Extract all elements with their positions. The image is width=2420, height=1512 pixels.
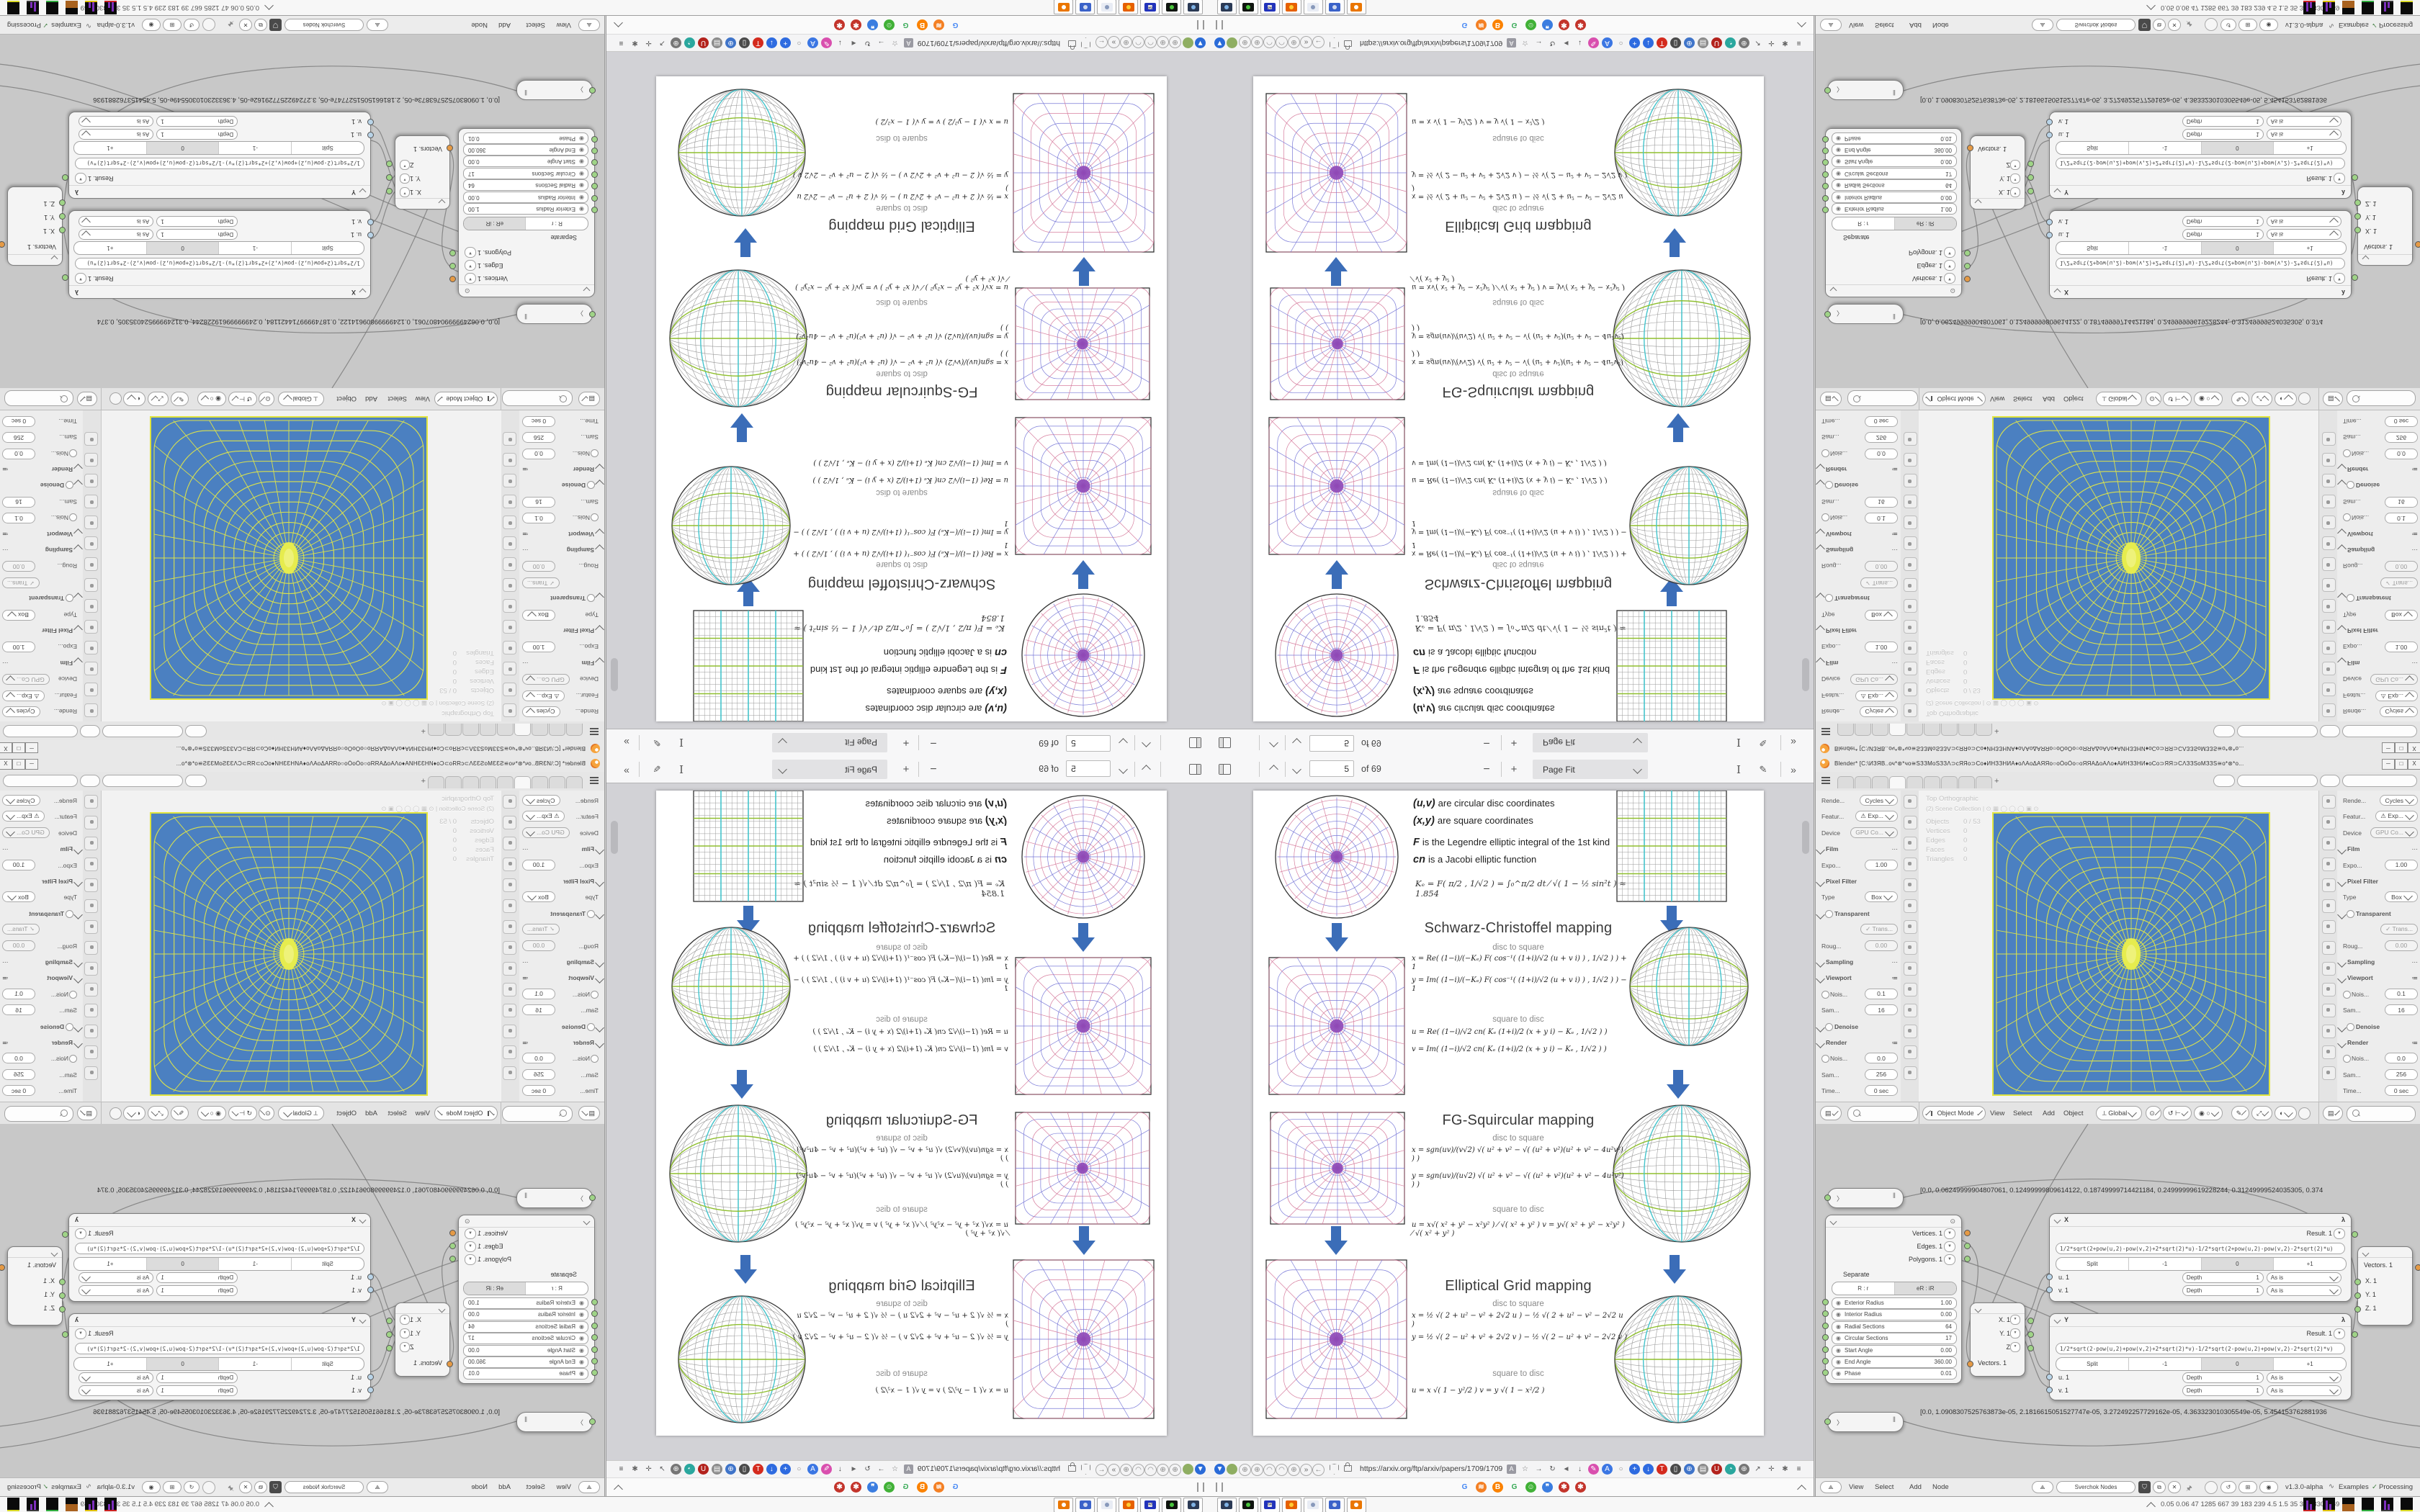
node-header[interactable]: ⊙: [1826, 284, 1961, 297]
section-checkbox[interactable]: [66, 910, 73, 918]
section-checkbox[interactable]: [2347, 1023, 2354, 1031]
editor-type-dropdown[interactable]: ▤: [1820, 1106, 1842, 1120]
socket-menu[interactable]: ▼: [1944, 1241, 1955, 1252]
number-field[interactable]: ◉End Angle360.00: [463, 1356, 588, 1368]
expand-icon[interactable]: [595, 464, 604, 473]
workspace-tab[interactable]: [480, 724, 496, 736]
minimize-button[interactable]: ─: [25, 742, 38, 753]
property-value[interactable]: 0.00: [1865, 940, 1898, 951]
search-input[interactable]: [502, 1106, 573, 1122]
property-value[interactable]: 256: [2385, 432, 2418, 443]
properties-tab-icon[interactable]: [1904, 899, 1917, 913]
properties-tab-icon[interactable]: [503, 858, 516, 871]
wrap-select[interactable]: As is: [79, 1385, 154, 1396]
snap-target-dropdown[interactable]: ⊙: [2146, 392, 2161, 406]
nav-icon[interactable]: ⊕: [1251, 1464, 1263, 1476]
properties-tab-icon[interactable]: [1904, 474, 1917, 487]
collapse-toolbar-icon[interactable]: [1797, 1485, 1806, 1494]
tree-type-dropdown[interactable]: ⟁: [2032, 19, 2053, 31]
refresh-dropdown[interactable]: ↺: [2220, 19, 2236, 31]
extension-icon[interactable]: ◄: [1561, 37, 1572, 48]
bookmark-icon[interactable]: ≋: [1476, 1482, 1487, 1493]
depth-field[interactable]: Depth1: [2182, 116, 2264, 127]
extension-icon[interactable]: ▤: [712, 1464, 722, 1475]
extension-icon[interactable]: ✎: [1588, 1464, 1599, 1475]
menu-add[interactable]: Add: [1909, 21, 1922, 29]
node-header[interactable]: Yλ: [69, 1314, 370, 1327]
orientation-select[interactable]: ⟂ Global: [2096, 1106, 2142, 1120]
blender-app-launcher-icon[interactable]: [1347, 0, 1366, 14]
more-tools-button[interactable]: »: [618, 734, 635, 751]
collapse-chevron-icon[interactable]: [51, 1250, 58, 1257]
split-toggle[interactable]: Split-10+1: [73, 241, 364, 255]
expand-icon[interactable]: [2337, 657, 2347, 667]
expand-icon[interactable]: [73, 464, 83, 473]
search-input[interactable]: [1847, 390, 1918, 406]
card-reader-app-launcher-icon[interactable]: [1162, 0, 1181, 14]
extension-icon[interactable]: ✎: [1588, 37, 1599, 48]
depth-field[interactable]: Depth1: [2182, 1285, 2264, 1296]
property-value[interactable]: 16: [522, 497, 555, 508]
menu-icon[interactable]: [590, 777, 599, 778]
property-value[interactable]: 1.00: [2, 860, 35, 870]
depth-field[interactable]: Depth1: [156, 1372, 238, 1383]
socket-input[interactable]: [1822, 195, 1829, 202]
socket-input[interactable]: [1824, 87, 1831, 94]
properties-tab-icon[interactable]: [1904, 1066, 1917, 1080]
split-option[interactable]: -1: [2129, 142, 2202, 154]
properties-tab-icon[interactable]: [2322, 703, 2336, 717]
bake-dropdown[interactable]: ◉: [2259, 19, 2278, 31]
panel-menu-icon[interactable]: ≔: [1892, 530, 1899, 538]
split-option[interactable]: 0: [2202, 242, 2275, 254]
extension-icon[interactable]: ↗: [1752, 37, 1763, 48]
property-value[interactable]: 0 sec: [2, 1085, 35, 1096]
torus-node[interactable]: ⊙Vertices. 1▼Edges. 1▼Polygons. 1▼Separa…: [458, 128, 595, 297]
properties-tab-icon[interactable]: [503, 495, 516, 508]
extension-icon[interactable]: →: [876, 37, 887, 48]
depth-field[interactable]: Depth1: [2182, 129, 2264, 140]
property-value[interactable]: 0.0: [522, 449, 555, 459]
vector-out-node[interactable]: X. 1▼Y. 1▼Z▼Vectors. 1: [1970, 135, 2025, 210]
number-field[interactable]: ◉Radial Sections64: [463, 1321, 588, 1333]
socket-menu[interactable]: ▼: [1944, 247, 1955, 258]
extension-icon[interactable]: U: [698, 1464, 709, 1475]
property-value[interactable]: 0.1: [2, 513, 35, 523]
annotate-dropdown[interactable]: ✎: [2231, 392, 2249, 406]
editor-type-dropdown[interactable]: ⟁: [578, 19, 600, 31]
menu-icon[interactable]: [590, 734, 599, 735]
socket-input[interactable]: [2354, 1292, 2361, 1299]
expand-icon[interactable]: [2337, 1023, 2347, 1032]
examples-menu[interactable]: Examples: [2339, 1483, 2369, 1491]
socket-output-vectors[interactable]: [2415, 241, 2420, 248]
property-value[interactable]: 256: [522, 432, 555, 443]
socket-menu[interactable]: ▼: [465, 273, 476, 284]
pdf-scrollbar-thumb[interactable]: [611, 821, 618, 854]
workspace-tab[interactable]: [462, 724, 479, 736]
viewport-3d[interactable]: Top Orthographic (2) Scene Collection | …: [102, 410, 501, 721]
viewlayer-name-input[interactable]: [2342, 725, 2417, 737]
viewlayer-name-input[interactable]: [3, 725, 78, 737]
split-toggle[interactable]: Split-10+1: [2056, 241, 2347, 255]
socket-output[interactable]: [449, 1243, 456, 1249]
socket-input[interactable]: [1822, 136, 1829, 143]
collapse-chevron-icon[interactable]: [1975, 1306, 1982, 1313]
close-button[interactable]: X: [0, 759, 12, 770]
fake-user-shield-button[interactable]: ⛉: [2138, 1481, 2151, 1493]
vector-out-node[interactable]: X. 1▼Y. 1▼Z▼Vectors. 1: [395, 1302, 450, 1377]
property-value[interactable]: 0.00: [1865, 561, 1898, 572]
workspace-tab[interactable]: [445, 776, 462, 788]
menu-add[interactable]: Add: [1909, 1483, 1922, 1491]
collapse-toolbar-icon[interactable]: [1797, 18, 1806, 27]
workspace-tab[interactable]: [1872, 724, 1888, 736]
expand-icon[interactable]: [73, 958, 83, 968]
property-value[interactable]: 256: [2, 432, 35, 443]
nav-icon[interactable]: ⊕: [1251, 36, 1263, 48]
orientation-select[interactable]: ⟂ Global: [278, 392, 324, 406]
extension-icon[interactable]: ▯: [739, 1464, 750, 1475]
unlink-tree-button[interactable]: ✕: [239, 19, 252, 31]
property-value[interactable]: ✓ Trans...: [522, 924, 560, 935]
extension-icon[interactable]: +: [1629, 37, 1640, 48]
socket-input[interactable]: [1822, 1310, 1829, 1317]
split-toggle[interactable]: Split-10+1: [2056, 1257, 2347, 1271]
socket-input[interactable]: [1824, 1418, 1831, 1425]
expand-icon[interactable]: [595, 480, 604, 490]
properties-tab-icon[interactable]: [84, 1066, 98, 1080]
bookmark-icon[interactable]: ≋: [933, 1482, 944, 1493]
socket-input[interactable]: [1822, 159, 1829, 166]
property-value[interactable]: GPU Co...: [2, 827, 50, 838]
menu-icon[interactable]: [1821, 734, 1830, 735]
node-tree-select[interactable]: Sverchok Nodes: [284, 19, 364, 31]
properties-tab-icon[interactable]: [503, 557, 516, 571]
zoom-select[interactable]: Page Fit: [772, 760, 887, 779]
nav-icon[interactable]: ◠: [1144, 36, 1157, 48]
workspace-tab[interactable]: [1976, 776, 1992, 788]
menu-view[interactable]: View: [1990, 395, 2004, 402]
socket-menu[interactable]: ▼: [400, 174, 410, 184]
split-option[interactable]: +1: [2274, 1358, 2346, 1370]
notepad-launcher-icon[interactable]: [1304, 1498, 1323, 1512]
collapse-icon[interactable]: 〉: [577, 85, 583, 94]
layout-dropdown[interactable]: ⊞: [163, 1481, 181, 1493]
properties-tab-icon[interactable]: [2322, 1004, 2336, 1017]
pin-icon[interactable]: 🖈: [228, 17, 234, 29]
property-value[interactable]: 1.00: [2385, 860, 2418, 870]
close-button[interactable]: X: [2408, 742, 2420, 753]
expand-icon[interactable]: [595, 958, 604, 968]
property-value[interactable]: 256: [1865, 1069, 1898, 1080]
nav-icon[interactable]: [1183, 1464, 1193, 1475]
window-app-launcher-icon[interactable]: [1325, 1498, 1345, 1512]
node-header[interactable]: [395, 1303, 449, 1314]
socket-input[interactable]: [59, 227, 66, 233]
socket-input[interactable]: [589, 1418, 596, 1425]
extension-icon[interactable]: ✱: [1780, 1464, 1791, 1475]
zoom-out-button[interactable]: −: [925, 761, 942, 778]
collapse-chevron-icon[interactable]: [439, 199, 446, 207]
socket-menu[interactable]: ▼: [465, 1254, 476, 1265]
properties-tab-icon[interactable]: [84, 557, 98, 571]
extension-icon[interactable]: T: [1657, 1464, 1667, 1475]
split-option[interactable]: Split: [2056, 1358, 2129, 1370]
formula-input[interactable]: 1/2*sqrt(2+pow(u,2)-pow(v,2)+2*sqrt(2)*u…: [75, 1243, 364, 1254]
bookmark-icon[interactable]: ✱: [1559, 1482, 1569, 1493]
add-workspace-button[interactable]: +: [421, 777, 426, 786]
card-reader-app-launcher-icon[interactable]: [1239, 0, 1258, 14]
panel-menu-icon[interactable]: ⋯: [2412, 845, 2419, 853]
extension-icon[interactable]: A: [1602, 1464, 1613, 1475]
proportional-edit-group[interactable]: ◉ ○: [197, 1106, 226, 1120]
collapse-chevron-icon[interactable]: [2362, 256, 2370, 263]
properties-tab-icon[interactable]: [2322, 620, 2336, 634]
extension-icon[interactable]: ◔: [1725, 37, 1736, 48]
transform-dropdown[interactable]: ⤢: [148, 392, 169, 406]
nav-icon[interactable]: ⊕: [1157, 1464, 1169, 1476]
socket-input-u[interactable]: [367, 132, 374, 138]
split-option[interactable]: -1: [219, 142, 292, 154]
editor-type-dropdown[interactable]: ▤: [77, 1106, 97, 1120]
expand-icon[interactable]: [1816, 657, 1825, 667]
property-value[interactable]: 0 sec: [1865, 416, 1898, 427]
socket-input[interactable]: [1824, 311, 1831, 318]
expand-icon[interactable]: [1816, 464, 1825, 473]
screenshot-tool-launcher-icon[interactable]: [1183, 0, 1203, 14]
section-checkbox[interactable]: [1825, 1023, 1833, 1031]
sverchok-node-editor[interactable]: 〉‖ 〉‖[0.0, 0.06249999904807061, 0.124999…: [0, 1124, 604, 1477]
property-value[interactable]: 16: [2, 1004, 35, 1015]
properties-tab-icon[interactable]: [503, 683, 516, 696]
expand-icon[interactable]: [595, 593, 604, 602]
search-input[interactable]: [4, 390, 73, 406]
split-option[interactable]: +1: [74, 242, 146, 254]
property-value[interactable]: 16: [1865, 497, 1898, 508]
socket-input-v[interactable]: [367, 119, 374, 125]
menu-object[interactable]: Object: [337, 1110, 357, 1117]
zoom-out-button[interactable]: −: [925, 734, 942, 751]
workspace-tab[interactable]: [1941, 776, 1958, 788]
card-reader-app-launcher-icon[interactable]: [1239, 1498, 1258, 1512]
snap-circle-icon[interactable]: [2205, 1481, 2218, 1494]
snap-toggle-group[interactable]: ↺ ⊢: [228, 392, 257, 406]
editor-type-dropdown[interactable]: ▤: [1820, 392, 1842, 406]
firefox-launcher-icon[interactable]: [1119, 0, 1138, 14]
notepad-launcher-icon[interactable]: [1097, 0, 1116, 14]
sidebar-toggle-icon[interactable]: [1187, 761, 1204, 778]
bookmark-icon[interactable]: G: [900, 19, 911, 30]
properties-tab-icon[interactable]: [2322, 662, 2336, 675]
draw-tool-icon[interactable]: ✎: [1754, 734, 1772, 751]
property-value[interactable]: 0.1: [1865, 513, 1898, 523]
depth-field[interactable]: Depth1: [2182, 1272, 2264, 1283]
panel-menu-icon[interactable]: ≔: [2, 465, 9, 473]
properties-tab-icon[interactable]: [2322, 1025, 2336, 1038]
properties-tab-icon[interactable]: [2322, 599, 2336, 613]
panel-menu-icon[interactable]: ≔: [522, 1039, 529, 1047]
properties-tab-icon[interactable]: [2322, 816, 2336, 829]
value-checkbox[interactable]: [2343, 1055, 2351, 1063]
workspace-tab[interactable]: [1906, 724, 1923, 736]
properties-tab-icon[interactable]: [1904, 453, 1917, 467]
toolbar-grippy[interactable]: [1197, 20, 1204, 30]
split-option[interactable]: +1: [74, 1358, 146, 1370]
node-header[interactable]: Yλ: [2050, 1314, 2351, 1327]
extension-icon[interactable]: U: [1711, 37, 1722, 48]
property-value[interactable]: ✓ Trans...: [2, 577, 40, 588]
mode-option[interactable]: eR : iR: [464, 217, 526, 230]
minimize-button[interactable]: ─: [25, 759, 38, 770]
next-page-button[interactable]: [1288, 761, 1305, 778]
property-value[interactable]: Cycles: [2, 795, 40, 806]
panel-menu-icon[interactable]: ≔: [2, 974, 9, 982]
number-field[interactable]: ◉Start Angle0.00: [1832, 156, 1957, 167]
expand-icon[interactable]: [1816, 878, 1825, 887]
extension-icon[interactable]: U: [1711, 1464, 1722, 1475]
scene-name-input[interactable]: [102, 725, 183, 737]
number-field[interactable]: ◉End Angle360.00: [1832, 1356, 1957, 1368]
property-value[interactable]: 1.00: [522, 860, 555, 870]
properties-tab-icon[interactable]: [84, 1004, 98, 1017]
panel-menu-icon[interactable]: ⋯: [522, 845, 529, 853]
socket-input[interactable]: [1822, 1334, 1829, 1341]
draw-tool-icon[interactable]: ✎: [1754, 761, 1772, 778]
panel-menu-icon[interactable]: ≔: [1892, 1039, 1899, 1047]
viewport-3d[interactable]: Top Orthographic (2) Scene Collection | …: [1919, 791, 2318, 1102]
fake-user-shield-button[interactable]: ⛉: [269, 1481, 282, 1493]
bookmark-icon[interactable]: G: [1509, 19, 1520, 30]
properties-tab-icon[interactable]: [503, 1025, 516, 1038]
draw-tool-icon[interactable]: ✎: [648, 734, 665, 751]
property-value[interactable]: 0.00: [2, 561, 35, 572]
socket-output[interactable]: [2027, 1345, 2034, 1351]
zoom-select[interactable]: Page Fit: [772, 733, 887, 752]
nav-icon[interactable]: ⊕: [1120, 1464, 1132, 1476]
section-checkbox[interactable]: [66, 1023, 73, 1031]
node-header[interactable]: [2358, 254, 2412, 265]
extension-icon[interactable]: ↓: [1574, 37, 1585, 48]
expand-icon[interactable]: [595, 910, 604, 919]
floppy-64-app-launcher-icon[interactable]: 64: [1260, 0, 1280, 14]
panel-menu-icon[interactable]: ≔: [1892, 974, 1899, 982]
extension-icon[interactable]: ✛: [1766, 1464, 1777, 1475]
window-app-launcher-icon[interactable]: [1075, 0, 1095, 14]
text-select-tool-icon[interactable]: I: [673, 761, 690, 778]
split-option[interactable]: Split: [291, 1258, 364, 1270]
expand-icon[interactable]: [73, 845, 83, 855]
transform-dropdown[interactable]: ⤢: [2251, 1106, 2272, 1120]
socket-input[interactable]: [59, 1306, 66, 1313]
properties-tab-icon[interactable]: [503, 941, 516, 955]
socket-output[interactable]: [449, 276, 456, 282]
collapse-chevron-icon[interactable]: [583, 287, 591, 294]
socket-menu[interactable]: ▼: [1944, 260, 1955, 271]
socket-menu[interactable]: ▼: [400, 1315, 410, 1325]
socket-input[interactable]: [591, 1346, 598, 1353]
extension-icon[interactable]: ↻: [1547, 37, 1558, 48]
menu-node[interactable]: Node: [471, 1483, 488, 1491]
formula-node-x[interactable]: XλResult. 1▼1/2*sqrt(2+pow(u,2)-pow(v,2)…: [68, 210, 371, 299]
nav-icon[interactable]: ⊕: [1239, 1464, 1251, 1476]
property-value[interactable]: Box: [2385, 610, 2418, 621]
stethoscope-node-y[interactable]: 〉‖: [1827, 80, 1904, 100]
pin-icon[interactable]: 🖈: [2186, 1483, 2192, 1495]
annotate-dropdown[interactable]: ✎: [171, 392, 189, 406]
extension-icon[interactable]: ◄: [848, 1464, 859, 1475]
zoom-out-button[interactable]: −: [1478, 734, 1495, 751]
node-tree-select[interactable]: Sverchok Nodes: [2056, 19, 2136, 31]
expand-icon[interactable]: [595, 544, 604, 554]
taskbar-expand-icon[interactable]: [264, 1, 274, 10]
properties-tab-icon[interactable]: [1904, 536, 1917, 550]
workspace-tab[interactable]: [549, 776, 565, 788]
socket-input-v[interactable]: [367, 219, 374, 225]
property-value[interactable]: 1.00: [2385, 642, 2418, 652]
firefox-launcher-icon[interactable]: [1282, 1498, 1301, 1512]
split-toggle[interactable]: Split-10+1: [73, 141, 364, 155]
property-value[interactable]: 1.00: [1865, 860, 1898, 870]
socket-output-vectors[interactable]: [2415, 1264, 2420, 1271]
socket-input[interactable]: [59, 199, 66, 206]
workspace-tab[interactable]: [514, 776, 531, 788]
panel-menu-icon[interactable]: ⋯: [1892, 546, 1899, 554]
depth-field[interactable]: Depth1: [156, 116, 238, 127]
depth-field[interactable]: Depth1: [2182, 1385, 2264, 1396]
refresh-dropdown[interactable]: ↺: [184, 19, 200, 31]
split-option[interactable]: Split: [291, 1358, 364, 1370]
refresh-dropdown[interactable]: ↺: [2220, 1481, 2236, 1493]
url-text[interactable]: https://arxiv.org/ftp/arxiv/papers/1709/…: [1360, 39, 1502, 48]
properties-tab-icon[interactable]: [84, 962, 98, 976]
shading-sphere-icon[interactable]: [2298, 1107, 2311, 1120]
socket-output[interactable]: [2027, 161, 2034, 167]
scene-icon-dropdown[interactable]: [2213, 775, 2235, 787]
properties-tab-icon[interactable]: [503, 920, 516, 934]
blender-app-launcher-icon[interactable]: [1347, 1498, 1366, 1512]
mode-select[interactable]: Object Mode: [1922, 1106, 1986, 1120]
extension-icon[interactable]: ○: [1615, 1464, 1626, 1475]
socket-input[interactable]: [1822, 1369, 1829, 1376]
extension-icon[interactable]: ○: [794, 37, 805, 48]
workspace-tab[interactable]: [1855, 724, 1871, 736]
property-value[interactable]: GPU Co...: [522, 674, 570, 685]
extension-icon[interactable]: ▤: [1698, 37, 1708, 48]
workspace-tab[interactable]: [566, 776, 583, 788]
zoom-select[interactable]: Page Fit: [1533, 733, 1648, 752]
properties-tab-icon[interactable]: [503, 641, 516, 654]
collapse-chevron-icon[interactable]: [359, 1217, 367, 1224]
depth-field[interactable]: Depth1: [156, 229, 238, 240]
expand-icon[interactable]: [1816, 910, 1825, 919]
socket-input[interactable]: [1822, 171, 1829, 178]
property-value[interactable]: ✓ Trans...: [2380, 577, 2418, 588]
collapse-chevron-icon[interactable]: [359, 1317, 367, 1324]
pdf-scrollbar-thumb[interactable]: [1802, 658, 1809, 691]
properties-tab-icon[interactable]: [2322, 641, 2336, 654]
socket-output-result[interactable]: [2352, 1231, 2358, 1238]
extension-icon[interactable]: ⊕: [1739, 37, 1749, 48]
property-value[interactable]: ⚠ Exp...: [522, 811, 565, 822]
extension-icon[interactable]: ✛: [643, 37, 654, 48]
properties-tab-icon[interactable]: [503, 432, 516, 446]
extension-icon[interactable]: ↓: [1643, 37, 1654, 48]
value-checkbox[interactable]: [69, 449, 77, 457]
expand-icon[interactable]: [1816, 845, 1825, 855]
bookmark-icon[interactable]: ❞: [1542, 19, 1553, 30]
shading-dropdown[interactable]: ◐: [123, 392, 145, 406]
